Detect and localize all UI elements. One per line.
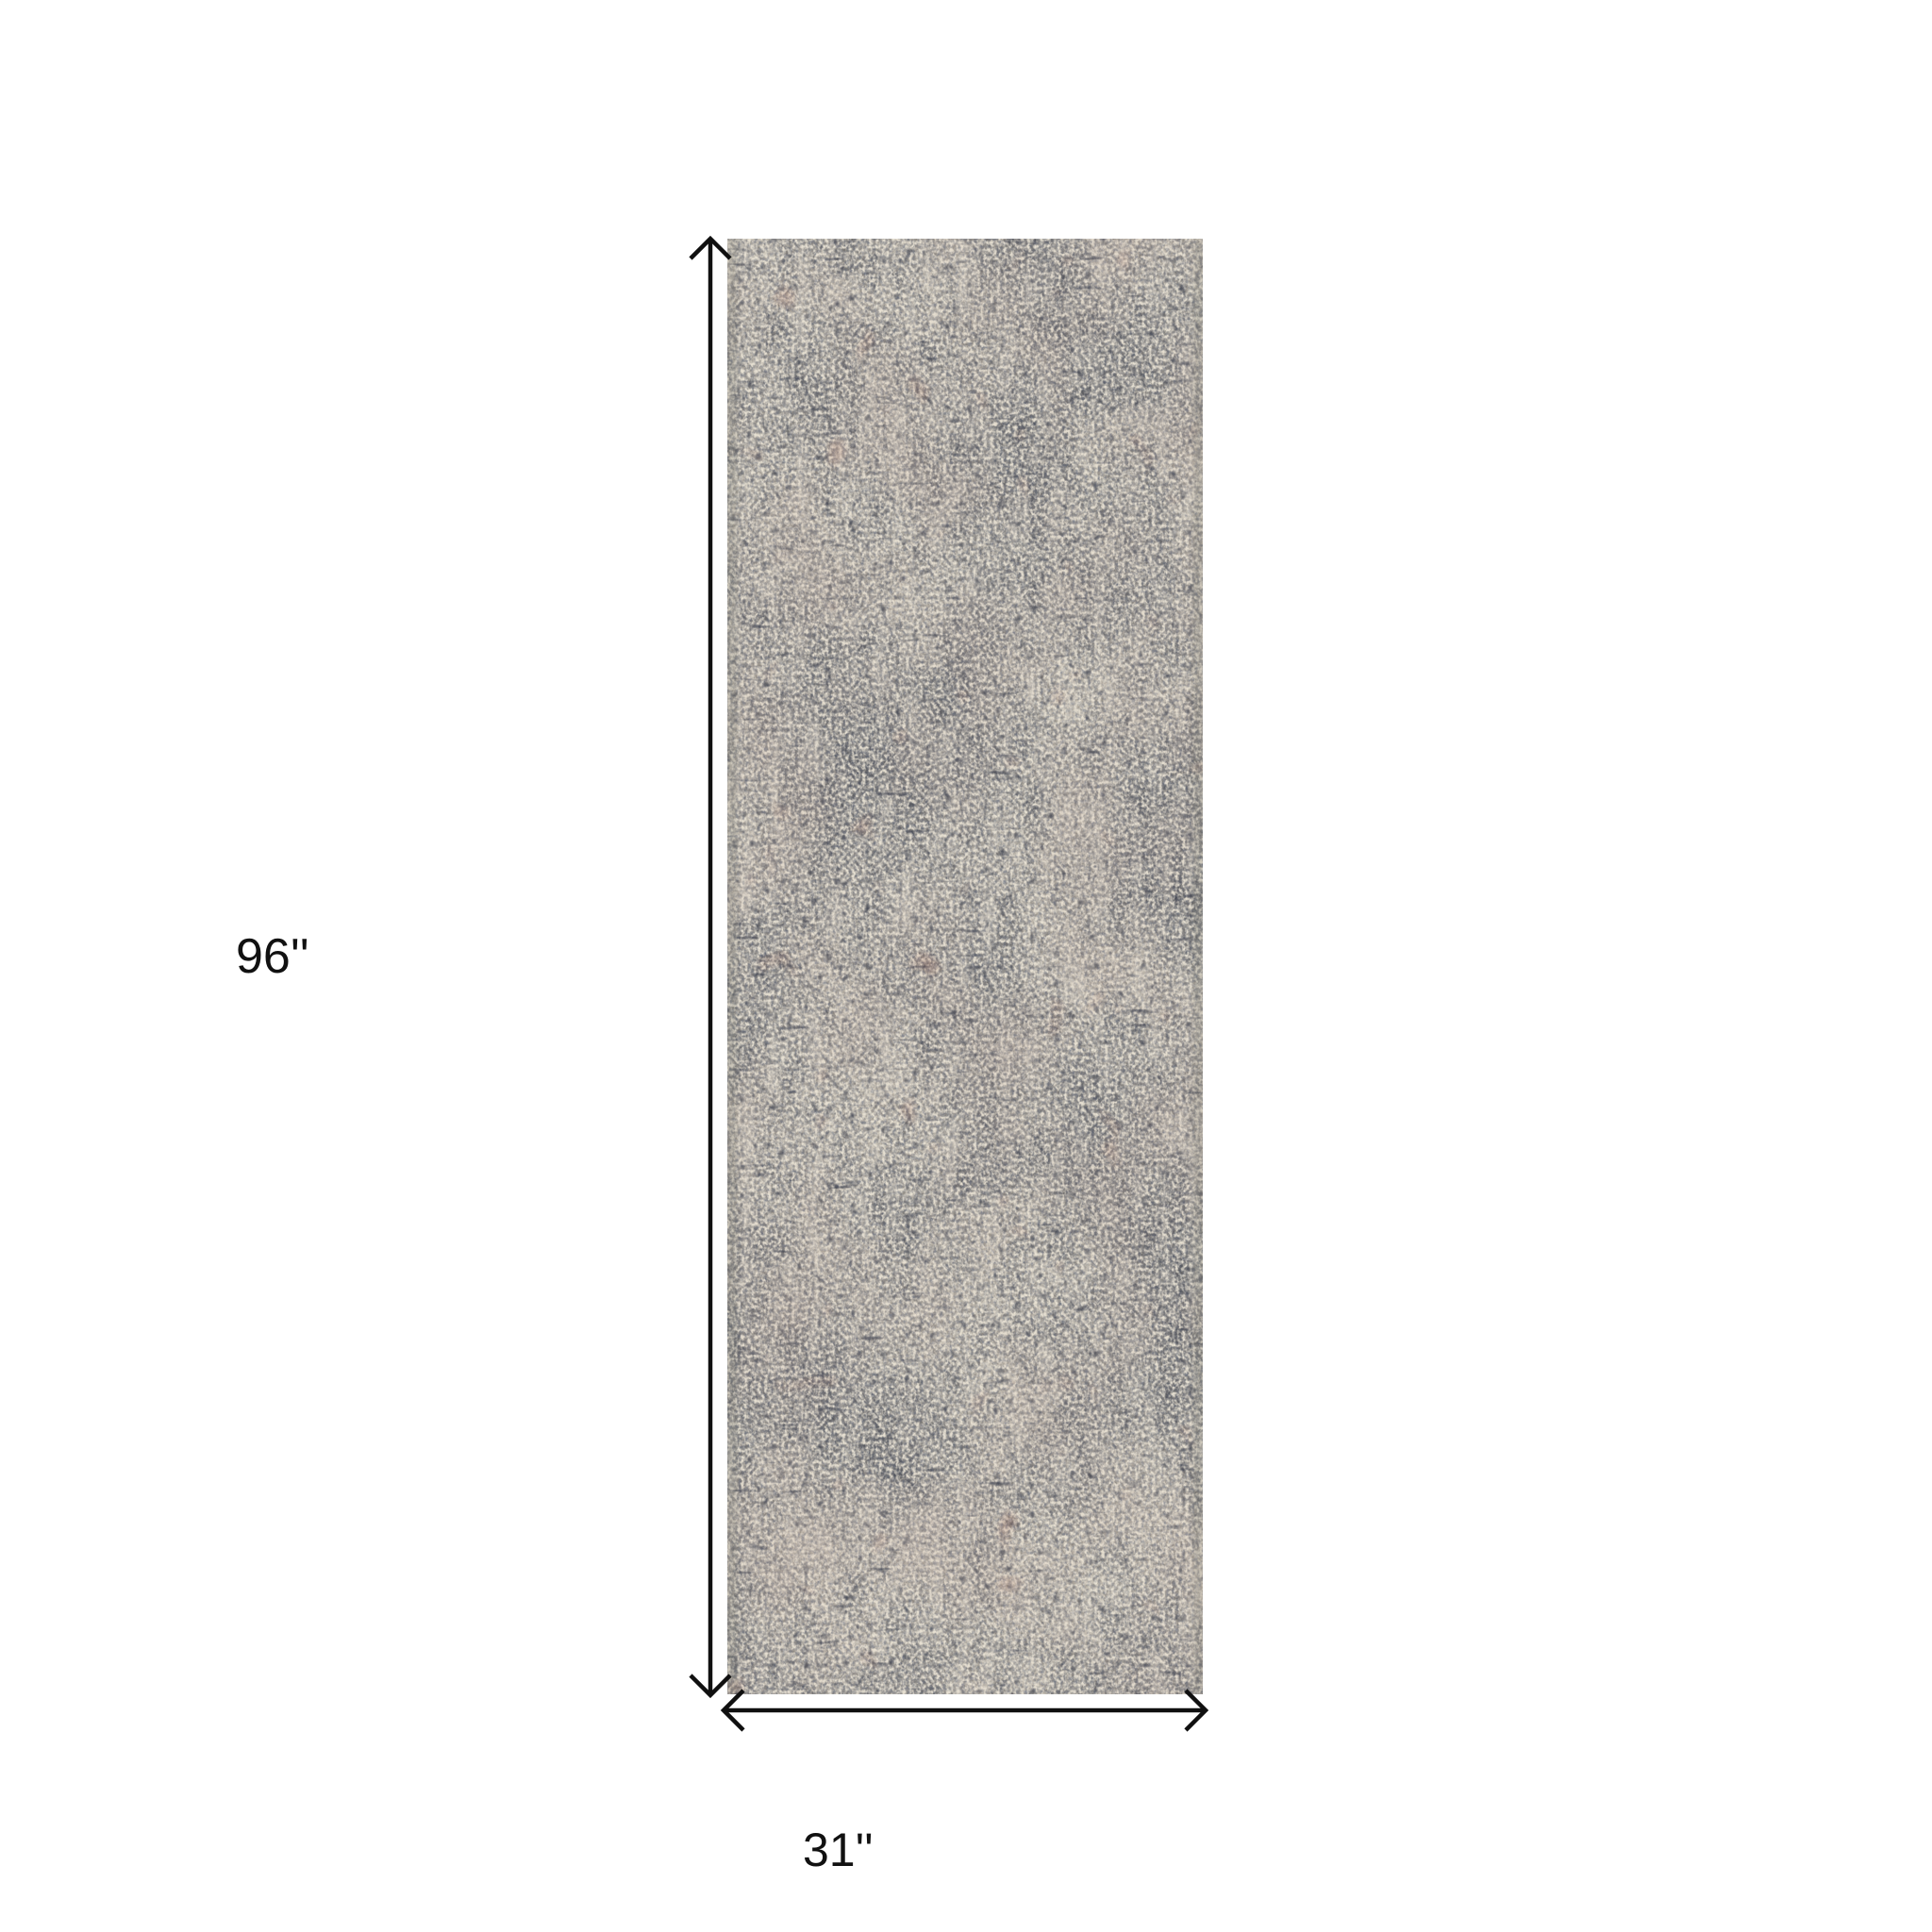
svg-text:31'': 31'' — [803, 1824, 874, 1876]
svg-text:96'': 96'' — [236, 929, 309, 984]
